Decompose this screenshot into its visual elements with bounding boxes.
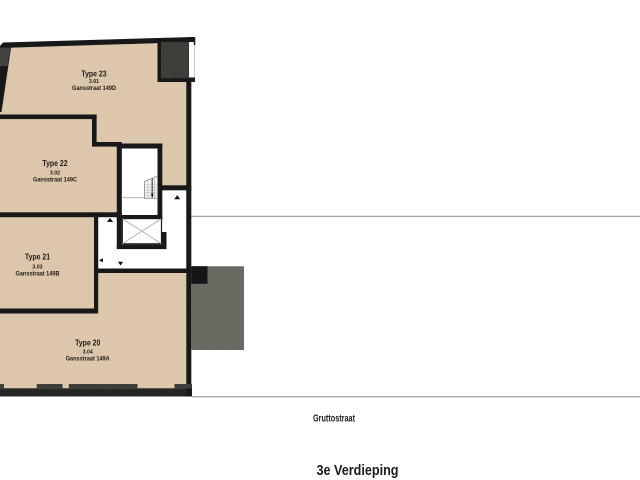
svg-text:Gansstraat 149A: Gansstraat 149A xyxy=(66,355,110,362)
svg-text:Gansstraat 149D: Gansstraat 149D xyxy=(72,85,116,92)
svg-text:3e Verdieping: 3e Verdieping xyxy=(317,463,399,479)
svg-text:Gruttostraat: Gruttostraat xyxy=(313,413,355,424)
svg-text:Gansstraat 149B: Gansstraat 149B xyxy=(16,270,60,277)
svg-text:3.03: 3.03 xyxy=(32,264,43,270)
svg-text:Type 22: Type 22 xyxy=(42,159,68,168)
svg-text:Gansstraat 149C: Gansstraat 149C xyxy=(33,177,77,184)
svg-text:Type 23: Type 23 xyxy=(81,69,107,78)
svg-text:Type 21: Type 21 xyxy=(25,252,51,261)
svg-text:3.04: 3.04 xyxy=(83,349,94,355)
svg-text:Type 20: Type 20 xyxy=(75,339,101,348)
